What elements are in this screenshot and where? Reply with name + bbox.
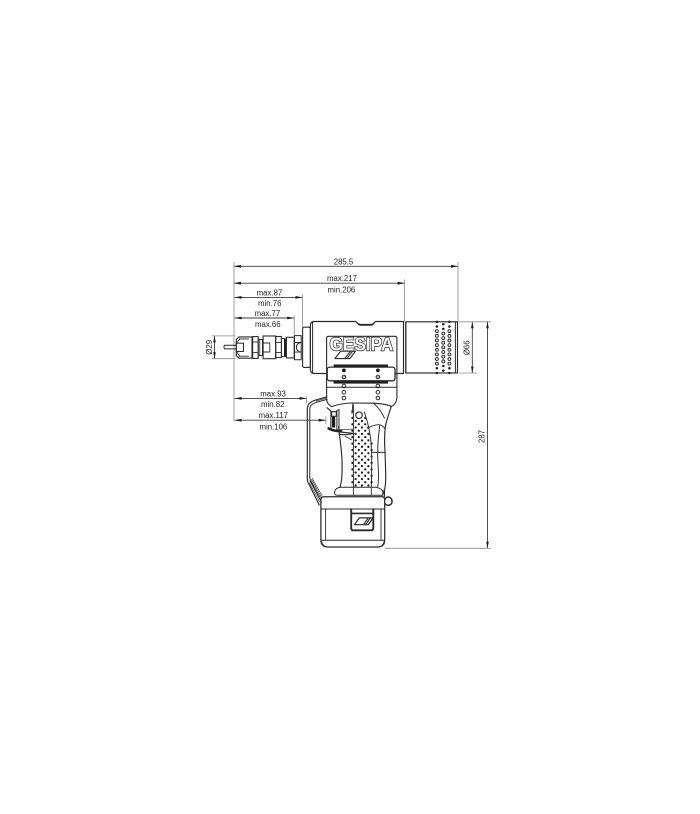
svg-text:min.206: min.206 (328, 286, 356, 295)
svg-text:max.77: max.77 (255, 309, 281, 318)
svg-text:min.76: min.76 (258, 299, 281, 308)
svg-text:max.93: max.93 (260, 389, 286, 398)
svg-text:287: 287 (477, 430, 486, 443)
svg-text:Ø29: Ø29 (205, 340, 214, 355)
svg-text:285.5: 285.5 (334, 257, 354, 266)
svg-text:max.87: max.87 (257, 288, 283, 297)
svg-text:min.106: min.106 (260, 422, 288, 431)
svg-text:min.82: min.82 (261, 400, 284, 409)
svg-text:max.117: max.117 (259, 411, 288, 420)
svg-text:max.66: max.66 (255, 320, 281, 329)
svg-text:GESIPA: GESIPA (330, 333, 394, 354)
svg-text:max.217: max.217 (327, 274, 357, 283)
svg-text:Ø66: Ø66 (462, 340, 471, 355)
